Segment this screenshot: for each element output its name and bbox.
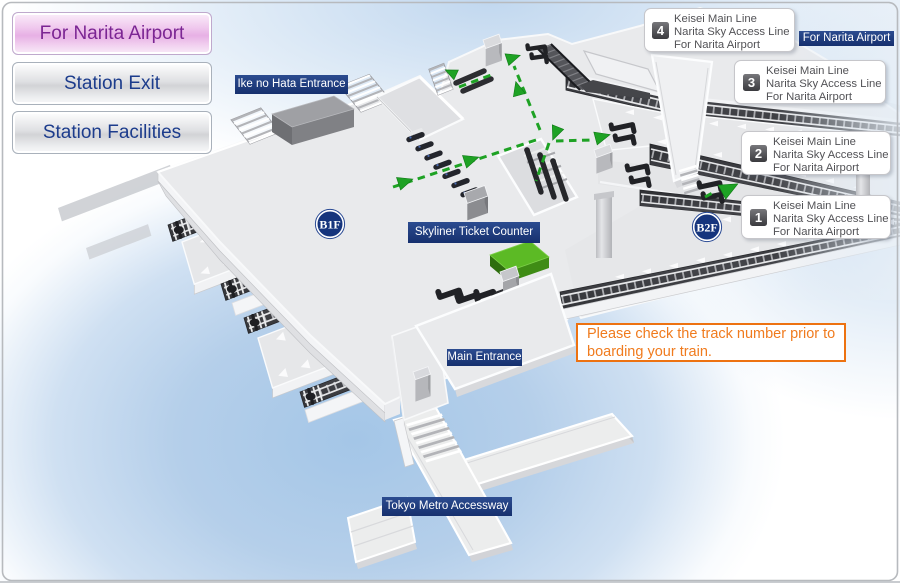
svg-text:B2F: B2F xyxy=(696,221,717,235)
svg-text:B1F: B1F xyxy=(319,218,340,232)
